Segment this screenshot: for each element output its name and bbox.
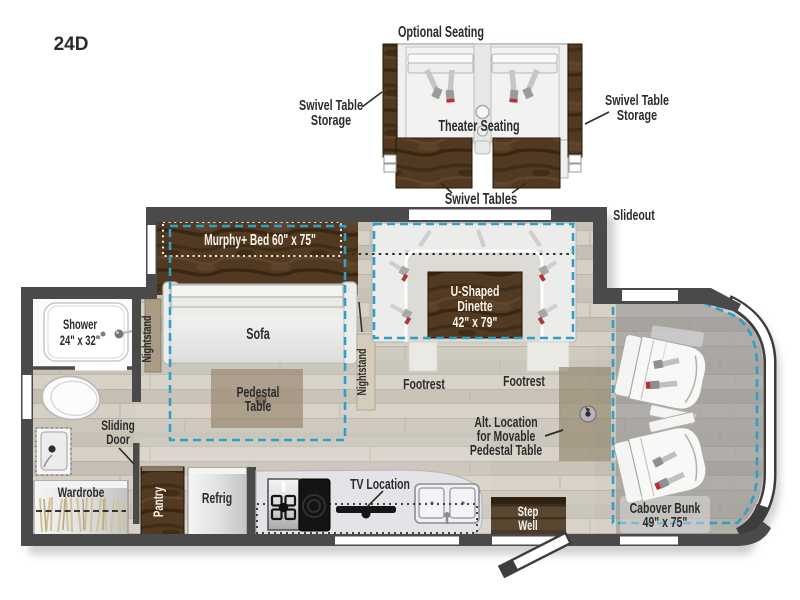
svg-text:Table: Table (245, 398, 271, 414)
svg-text:Well: Well (518, 517, 537, 533)
svg-text:Pantry: Pantry (152, 487, 167, 518)
svg-text:Sofa: Sofa (246, 325, 270, 343)
svg-text:Door: Door (106, 431, 130, 447)
svg-text:Pedestal Table: Pedestal Table (470, 442, 542, 458)
svg-text:Wardrobe: Wardrobe (58, 484, 105, 500)
svg-text:Footrest: Footrest (403, 376, 445, 392)
svg-text:Theater Seating: Theater Seating (438, 117, 519, 134)
svg-text:Optional Seating: Optional Seating (398, 23, 484, 40)
svg-text:Storage: Storage (311, 111, 351, 128)
svg-text:U-Shaped: U-Shaped (451, 283, 500, 299)
svg-text:24D: 24D (54, 34, 89, 55)
svg-text:TV Location: TV Location (350, 476, 410, 492)
svg-text:Dinette: Dinette (457, 298, 492, 314)
svg-text:42" x 79": 42" x 79" (453, 314, 498, 330)
svg-text:24" x 32": 24" x 32" (60, 333, 100, 348)
svg-text:Shower: Shower (63, 317, 97, 332)
svg-text:Storage: Storage (617, 106, 657, 123)
svg-text:Nightstand: Nightstand (356, 349, 370, 396)
svg-text:49" x 75": 49" x 75" (643, 514, 688, 530)
svg-text:Murphy+ Bed 60" x 75": Murphy+ Bed 60" x 75" (204, 231, 316, 249)
svg-text:Slideout: Slideout (613, 206, 655, 223)
svg-text:Swivel Tables: Swivel Tables (445, 190, 517, 207)
svg-text:Footrest: Footrest (503, 373, 545, 389)
svg-text:Nightstand: Nightstand (141, 316, 155, 363)
svg-text:Refrig: Refrig (202, 490, 232, 506)
